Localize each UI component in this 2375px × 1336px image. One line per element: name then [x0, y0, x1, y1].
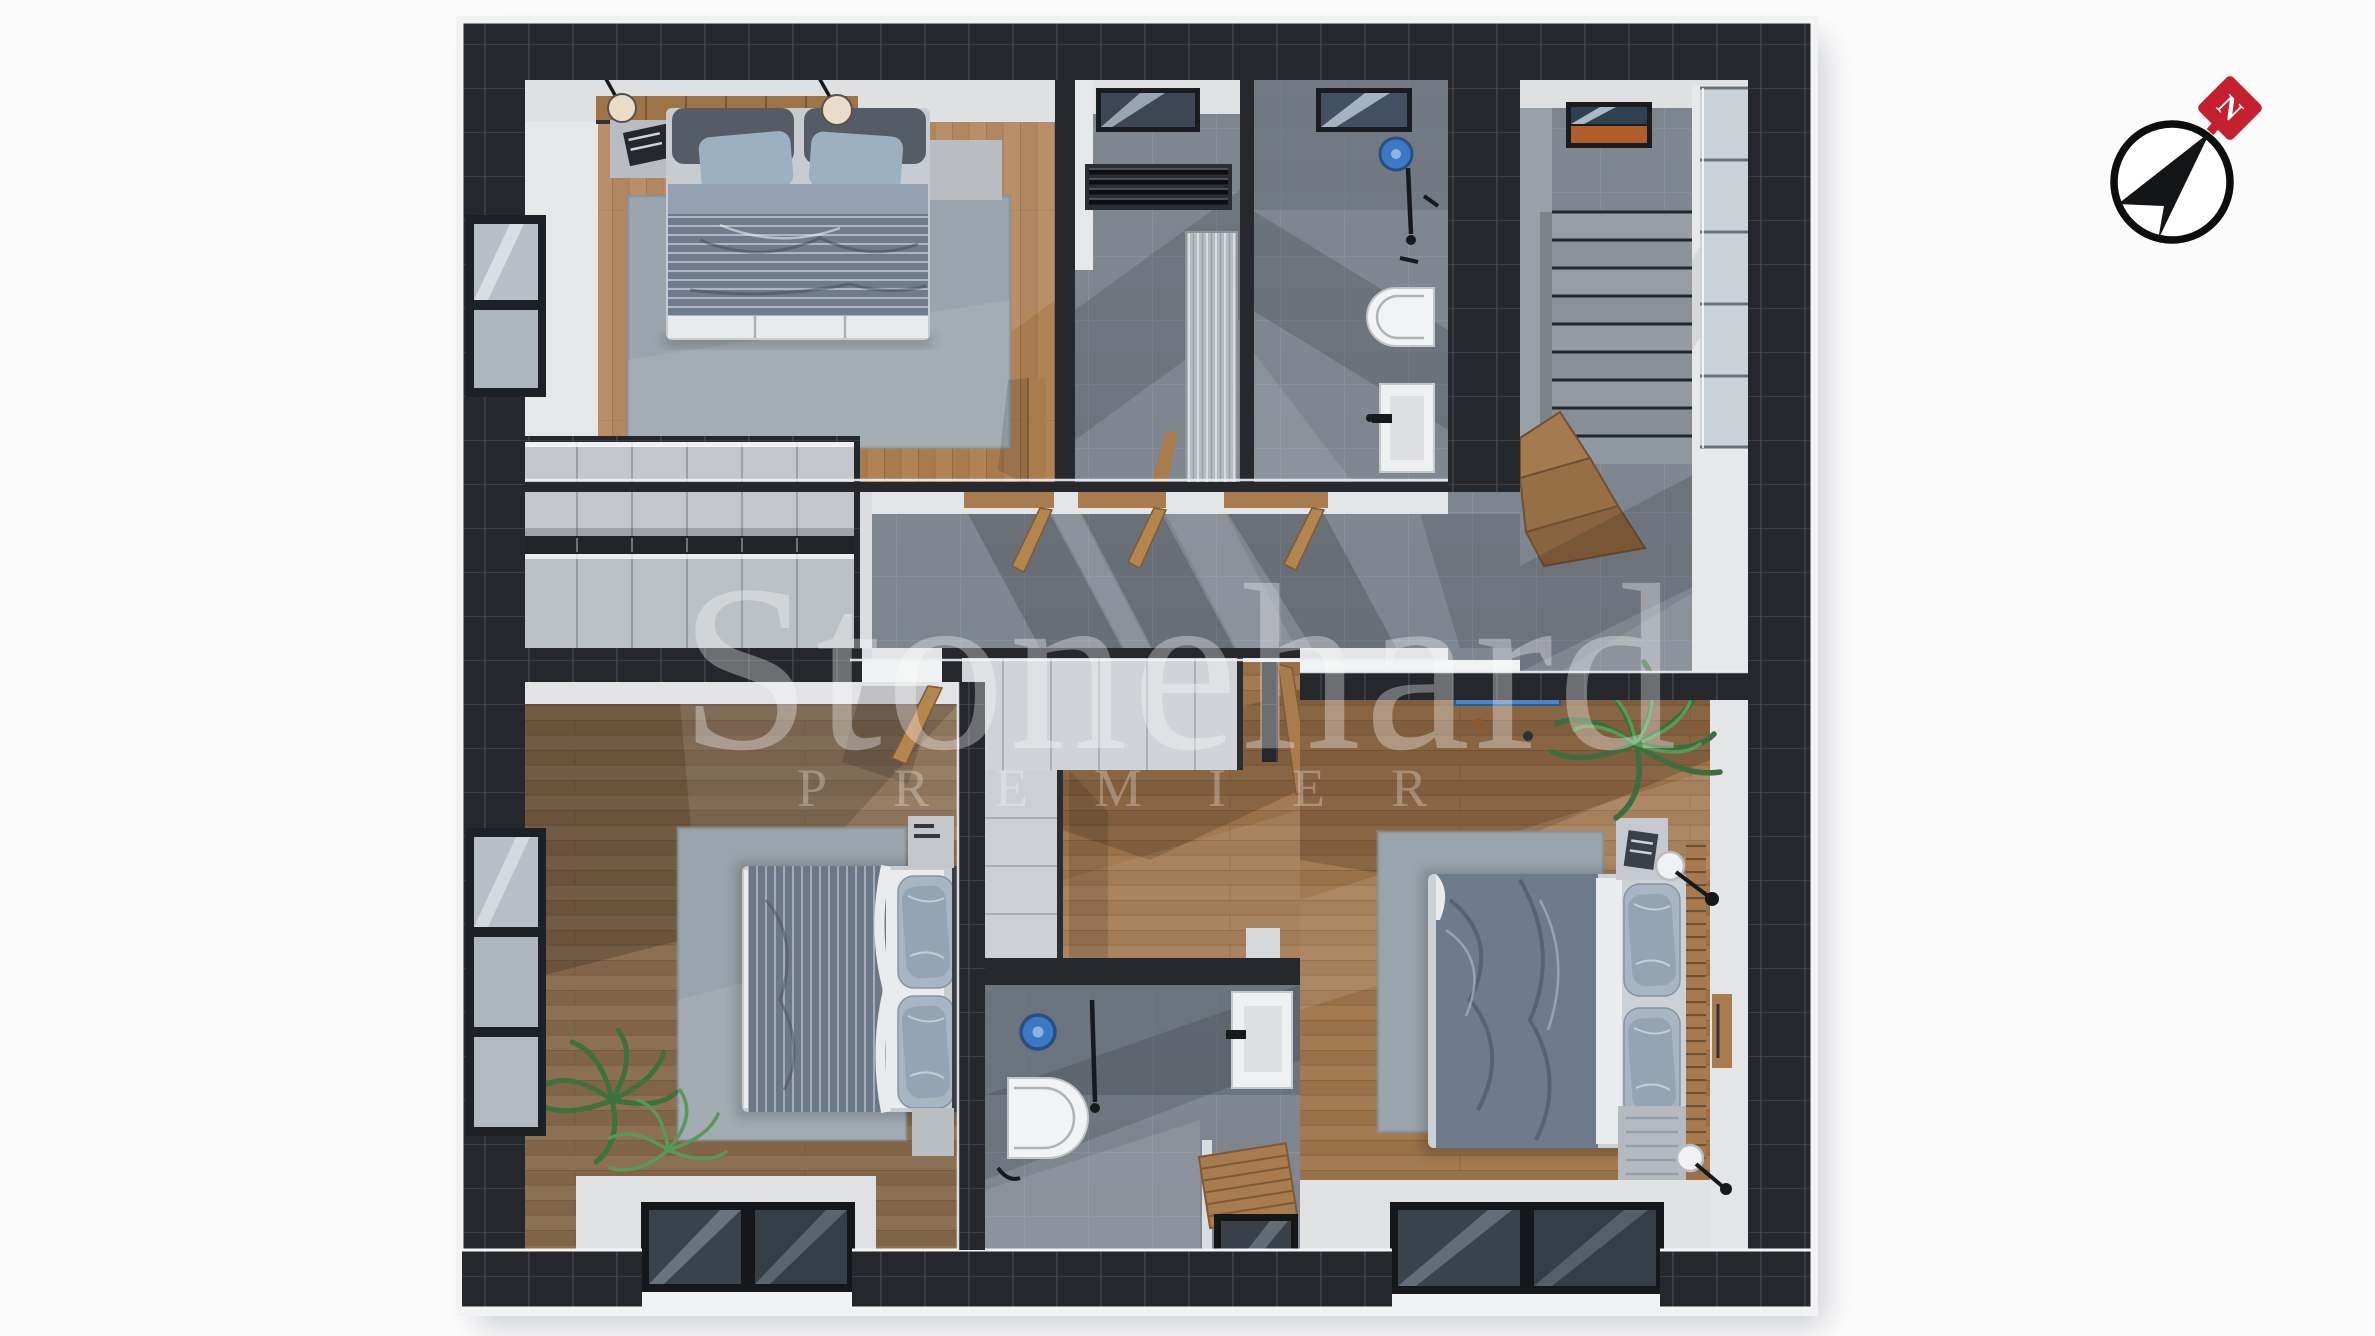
- floor-plan: Stonehard PREMIER N: [0, 0, 2375, 1336]
- glass-floor-panel: [641, 1202, 855, 1292]
- skylight: [1096, 88, 1200, 132]
- duvet: [1436, 874, 1598, 1148]
- radiator: [1085, 164, 1232, 210]
- open-door: [1028, 378, 1046, 486]
- bathroom-1: [1252, 80, 1448, 492]
- bathroom-2: [985, 985, 1300, 1290]
- shower-bar: [1092, 1000, 1095, 1102]
- skylight: [1316, 88, 1412, 132]
- faucet: [1372, 414, 1392, 423]
- wall-south: [1660, 1250, 1812, 1308]
- strip-window: [1700, 88, 1748, 448]
- louver-cabinet: [1186, 232, 1237, 485]
- wall-east: [1748, 22, 1812, 1308]
- shower-bar: [1408, 168, 1411, 234]
- bench: [912, 1108, 954, 1156]
- glass-floor-panel: [1390, 1202, 1664, 1294]
- wall-south: [462, 1250, 642, 1308]
- utility-room: [1075, 80, 1240, 490]
- book: [1624, 830, 1659, 870]
- watermark-subtitle: PREMIER: [797, 758, 1493, 818]
- wall-board: [1712, 994, 1732, 1068]
- shower-head: [1021, 1015, 1055, 1049]
- striped-duvet: [668, 214, 928, 320]
- shower-head: [1380, 138, 1412, 170]
- window: [466, 215, 546, 397]
- skylight: [1566, 102, 1652, 148]
- compass-icon: N: [2114, 74, 2264, 240]
- wall-south: [852, 1250, 1392, 1308]
- window: [466, 828, 546, 1136]
- bedroom-1: [525, 57, 1055, 488]
- double-bed: [736, 862, 964, 1118]
- dresser: [908, 816, 954, 868]
- washbasin: [1226, 992, 1292, 1088]
- pillow: [808, 131, 904, 193]
- wall-north: [462, 22, 1812, 80]
- floor-plan-render: Stonehard PREMIER N: [0, 0, 2375, 1336]
- watermark: Stonehard PREMIER: [679, 537, 1680, 818]
- double-bed: [664, 108, 932, 346]
- nightstand: [926, 140, 1002, 200]
- toilet: [1008, 1078, 1088, 1158]
